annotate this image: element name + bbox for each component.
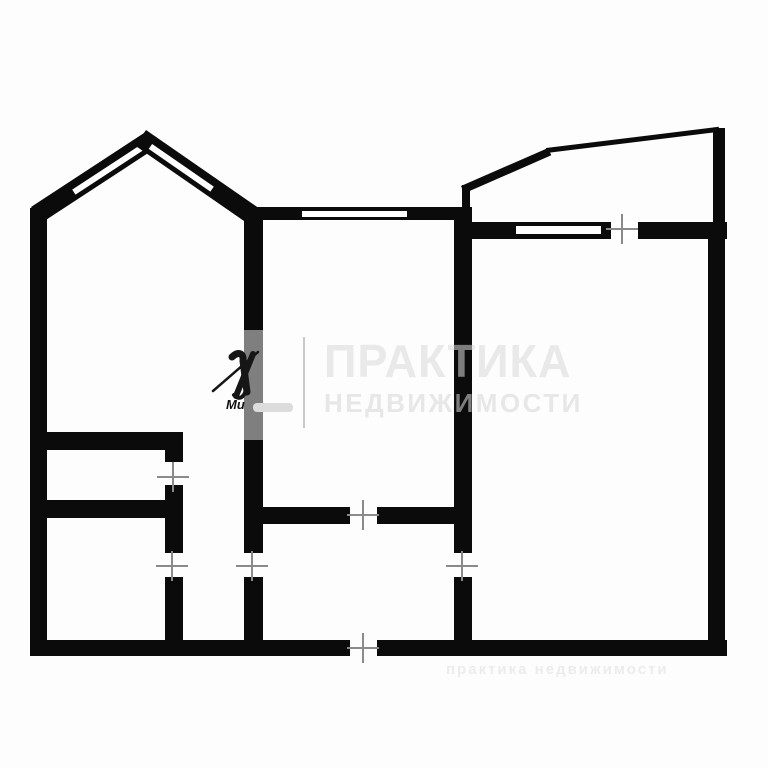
wall-inner-left-lower xyxy=(165,577,183,640)
wall-outer-bottom-right xyxy=(377,640,727,656)
watermark-separator-line xyxy=(303,337,305,428)
watermark-logo-caption-fade xyxy=(253,403,293,412)
wall-mid-left-lower xyxy=(244,577,263,640)
door-mark-hall-left-along xyxy=(251,551,253,581)
wall-bath-top xyxy=(40,500,165,518)
wall-hall-left xyxy=(260,507,350,524)
wall-closet-top xyxy=(40,432,183,450)
door-mark-closet-along xyxy=(172,462,174,492)
watermark-logo-caption: Ми xyxy=(226,398,245,411)
door-mark-living-along xyxy=(362,500,364,530)
wall-outer-bottom-left xyxy=(30,640,350,656)
floorplan-canvas: ПРАКТИКА НЕДВИЖИМОСТИ Ми ПРАКТИКА НЕДВИЖ… xyxy=(0,0,768,768)
window-slot-living xyxy=(302,211,407,217)
slope-right xyxy=(135,130,263,226)
balcony-angled-thin xyxy=(546,127,719,153)
door-mark-entrance-along xyxy=(362,633,364,663)
wall-outer-right xyxy=(708,222,725,656)
door-mark-bath-along xyxy=(171,551,173,581)
slope-left-window-slot xyxy=(72,144,145,194)
slope-right-window-slot xyxy=(149,144,214,192)
floorplan-drawing xyxy=(0,0,768,768)
balcony-angled-thick xyxy=(461,148,551,193)
wall-gap-balcony-door xyxy=(611,222,638,239)
door-mark-balcony-along xyxy=(621,214,623,244)
watermark-footer-text: практика недвижимости xyxy=(446,662,669,677)
wall-hall-right xyxy=(377,507,454,524)
wall-inner-left-stub xyxy=(165,450,183,462)
window-slot-bedroom xyxy=(516,226,601,234)
wall-inner-left-mid xyxy=(165,485,183,553)
balcony-right-edge xyxy=(713,128,725,225)
